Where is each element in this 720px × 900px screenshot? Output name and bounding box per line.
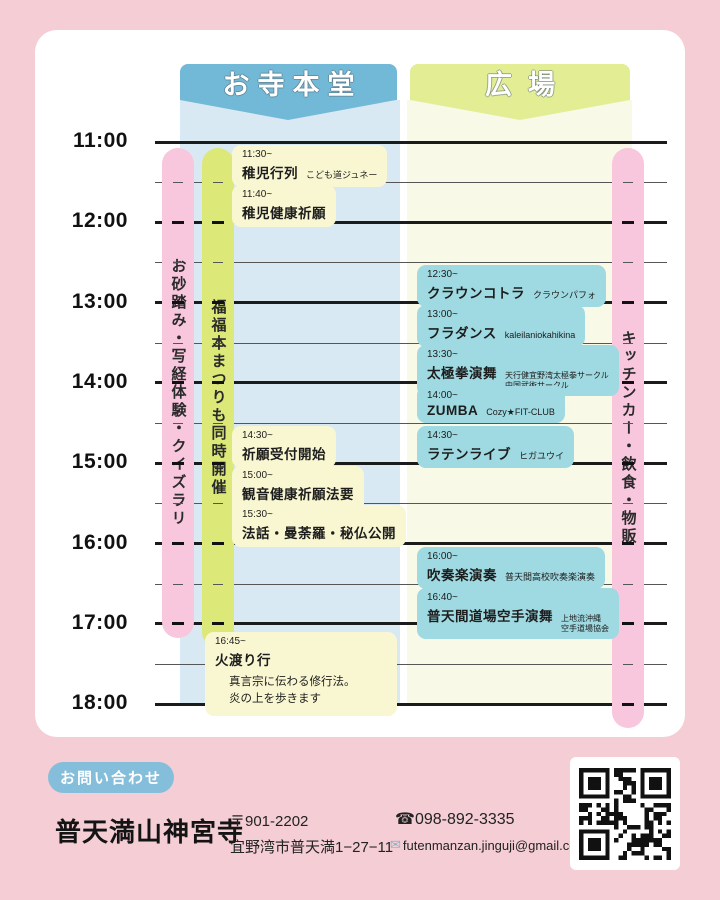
event-time: 15:00~ bbox=[242, 469, 354, 483]
bar-tick-half bbox=[623, 584, 633, 585]
event-card: 14:30~祈願受付開始 bbox=[232, 426, 336, 468]
event-performer-note: ヒガユウイ bbox=[519, 449, 564, 462]
time-label: 16:00 bbox=[40, 531, 128, 555]
street-address: 宜野湾市普天満1−27−11 bbox=[230, 835, 393, 861]
plaza-banner: 広場 bbox=[410, 64, 630, 100]
bar-tick-half bbox=[623, 182, 633, 183]
event-description: 真言宗に伝わる修行法。炎の上を歩きます bbox=[229, 674, 387, 710]
bar-tick bbox=[212, 301, 224, 304]
time-label: 17:00 bbox=[40, 611, 128, 635]
bar-tick-half bbox=[173, 584, 183, 585]
event-title: ラテンライブ bbox=[427, 443, 511, 463]
sand-walk-experience-label: お砂踏み・写経体験・クイズラリ bbox=[171, 258, 186, 528]
event-card: 16:40~普天間道場空手演舞上地流沖縄空手道場協会 bbox=[417, 588, 619, 639]
phone-number: 098-892-3335 bbox=[415, 811, 515, 828]
postal-code: 〒901-2202 bbox=[230, 809, 393, 835]
phone-line: ☎098-892-3335 bbox=[395, 809, 515, 829]
bar-tick-half bbox=[173, 182, 183, 183]
bar-tick bbox=[622, 703, 634, 706]
kitchen-car-label: キッチンカー・飲食・物販 bbox=[621, 330, 636, 546]
event-performer-note: 上地流沖縄空手道場協会 bbox=[561, 614, 609, 635]
contact-badge: お問い合わせ bbox=[48, 762, 174, 793]
bar-tick-half bbox=[623, 664, 633, 665]
event-performer-note: こども道ジュネー bbox=[306, 168, 377, 181]
festival-simultaneous-label: 福福本まつりも同時開催 bbox=[211, 299, 226, 497]
event-title: 祈願受付開始 bbox=[242, 443, 326, 463]
bar-tick-half bbox=[213, 423, 223, 424]
event-performer-note: kaleilaniokahikina bbox=[505, 330, 576, 340]
bar-tick bbox=[212, 542, 224, 545]
event-title: 吹奏楽演奏 bbox=[427, 564, 497, 584]
event-card: 11:40~稚児健康祈願 bbox=[232, 185, 336, 227]
event-title: 普天間道場空手演舞 bbox=[427, 605, 553, 625]
bar-tick bbox=[622, 381, 634, 384]
email-line: ✉futenmanzan.jinguji@gmail.com bbox=[390, 837, 587, 853]
event-performer-note: 普天間高校吹奏楽演奏 bbox=[505, 570, 595, 583]
time-label: 12:00 bbox=[40, 209, 128, 233]
event-title: 太極拳演舞 bbox=[427, 362, 497, 382]
event-card: 14:30~ラテンライブヒガユウイ bbox=[417, 426, 574, 468]
time-label: 18:00 bbox=[40, 691, 128, 715]
bar-tick-half bbox=[213, 182, 223, 183]
bar-tick-half bbox=[213, 262, 223, 263]
bar-tick-half bbox=[623, 343, 633, 344]
bar-tick bbox=[212, 381, 224, 384]
poster: 11:0012:0013:0014:0015:0016:0017:0018:00… bbox=[0, 0, 720, 900]
time-label: 11:00 bbox=[40, 129, 128, 153]
bar-tick bbox=[622, 462, 634, 465]
event-time: 13:30~ bbox=[427, 348, 609, 362]
plaza-banner-label: 広場 bbox=[469, 63, 571, 102]
phone-icon: ☎ bbox=[395, 811, 415, 828]
bar-tick-half bbox=[623, 262, 633, 263]
address-block: 〒901-2202 宜野湾市普天満1−27−11 bbox=[230, 809, 393, 862]
bar-tick bbox=[172, 381, 184, 384]
email-icon: ✉ bbox=[390, 837, 401, 853]
bar-tick bbox=[212, 462, 224, 465]
bar-tick bbox=[172, 221, 184, 224]
email-address: futenmanzan.jinguji@gmail.com bbox=[403, 838, 587, 853]
bar-tick-half bbox=[173, 343, 183, 344]
bar-tick-half bbox=[173, 423, 183, 424]
bar-tick-half bbox=[213, 584, 223, 585]
time-label: 15:00 bbox=[40, 450, 128, 474]
time-label: 14:00 bbox=[40, 370, 128, 394]
event-time: 13:00~ bbox=[427, 308, 575, 322]
bar-tick bbox=[622, 221, 634, 224]
bar-tick bbox=[172, 301, 184, 304]
bar-tick bbox=[172, 622, 184, 625]
event-title: ZUMBA bbox=[427, 403, 478, 418]
event-card: 12:30~クラウンコトラクラウンパフォ bbox=[417, 265, 606, 307]
event-time: 14:30~ bbox=[242, 429, 326, 443]
bar-tick bbox=[172, 542, 184, 545]
temple-name: 普天満山神宮寺 bbox=[55, 812, 244, 849]
event-time: 16:40~ bbox=[427, 591, 609, 605]
event-card: 16:00~吹奏楽演奏普天間高校吹奏楽演奏 bbox=[417, 547, 605, 589]
event-time: 16:45~ bbox=[215, 635, 387, 649]
bar-tick bbox=[622, 622, 634, 625]
event-title: 稚児行列 bbox=[242, 162, 298, 182]
bar-tick-half bbox=[213, 503, 223, 504]
bar-tick-half bbox=[623, 423, 633, 424]
bar-tick-half bbox=[213, 343, 223, 344]
temple-hall-banner: お寺本堂 bbox=[180, 64, 397, 100]
event-title: 法話・曼荼羅・秘仏公開 bbox=[242, 522, 396, 542]
bar-tick bbox=[622, 301, 634, 304]
event-card: 11:30~稚児行列こども道ジュネー bbox=[232, 145, 387, 187]
event-performer-note: Cozy★FIT-CLUB bbox=[486, 407, 555, 418]
event-time: 11:40~ bbox=[242, 188, 326, 202]
bar-tick bbox=[212, 221, 224, 224]
bar-tick-half bbox=[173, 262, 183, 263]
hour-line bbox=[155, 141, 667, 144]
event-card: 16:45~火渡り行真言宗に伝わる修行法。炎の上を歩きます bbox=[205, 632, 397, 716]
bar-tick bbox=[172, 462, 184, 465]
event-time: 16:00~ bbox=[427, 550, 595, 564]
event-time: 14:30~ bbox=[427, 429, 564, 443]
time-label: 13:00 bbox=[40, 290, 128, 314]
bar-tick-half bbox=[623, 503, 633, 504]
event-title: フラダンス bbox=[427, 322, 497, 342]
event-time: 15:30~ bbox=[242, 508, 396, 522]
event-time: 11:30~ bbox=[242, 148, 377, 162]
event-title: 観音健康祈願法要 bbox=[242, 483, 354, 503]
event-card: 15:30~法話・曼荼羅・秘仏公開 bbox=[232, 505, 406, 547]
event-time: 14:00~ bbox=[427, 389, 555, 403]
event-title: 火渡り行 bbox=[215, 649, 271, 669]
bar-tick bbox=[622, 542, 634, 545]
bar-tick bbox=[212, 622, 224, 625]
event-title: クラウンコトラ bbox=[427, 282, 525, 302]
temple-hall-banner-label: お寺本堂 bbox=[215, 63, 363, 102]
bar-tick-half bbox=[173, 503, 183, 504]
event-title: 稚児健康祈願 bbox=[242, 202, 326, 222]
event-time: 12:30~ bbox=[427, 268, 596, 282]
event-card: 14:00~ZUMBACozy★FIT-CLUB bbox=[417, 386, 565, 423]
event-performer-note: クラウンパフォ bbox=[533, 288, 596, 301]
qr-code bbox=[570, 757, 680, 870]
kitchen-car-bar: キッチンカー・飲食・物販 bbox=[612, 148, 644, 728]
event-card: 13:00~フラダンスkaleilaniokahikina bbox=[417, 305, 585, 347]
